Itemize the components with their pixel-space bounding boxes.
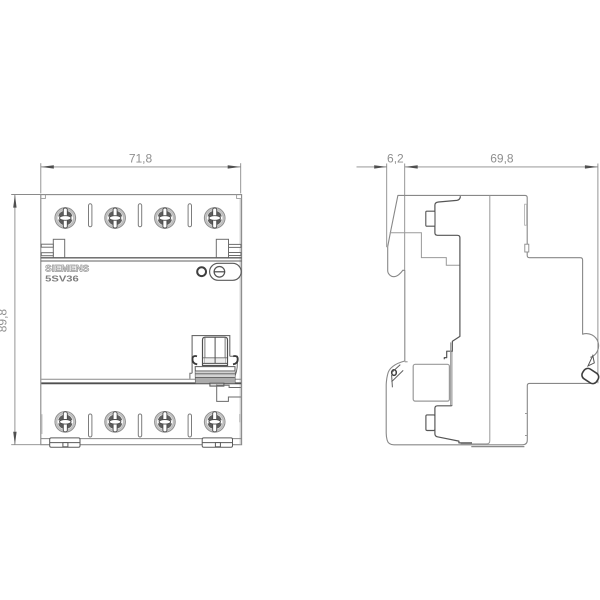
svg-text:5SV36: 5SV36: [45, 274, 79, 283]
svg-text:6,2: 6,2: [387, 152, 404, 166]
svg-text:71,8: 71,8: [129, 152, 153, 166]
svg-text:69,8: 69,8: [490, 152, 514, 166]
svg-text:89,8: 89,8: [0, 309, 9, 333]
svg-text:SIEMENS: SIEMENS: [45, 263, 89, 273]
